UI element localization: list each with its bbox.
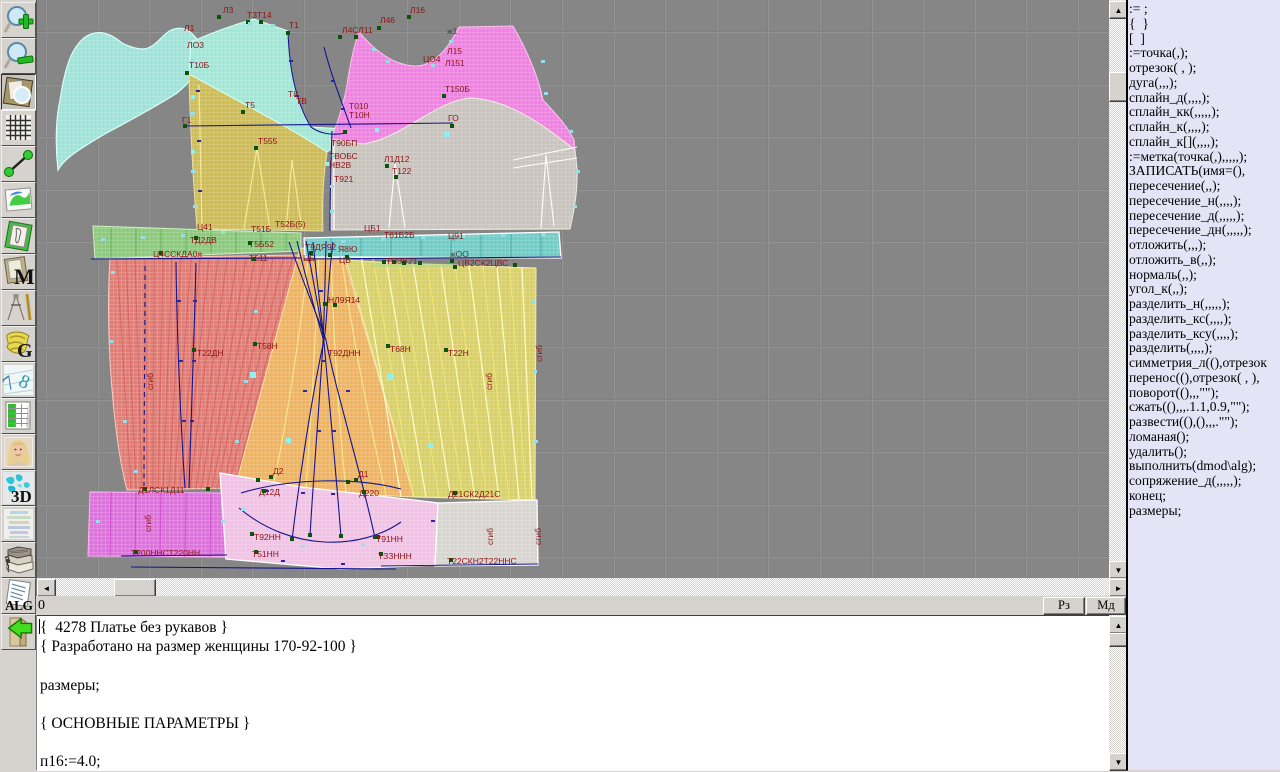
svg-text:сгиб: сгиб [533,528,543,545]
svg-text:Л151: Л151 [445,58,465,68]
svg-text:Т511: Т511 [249,253,268,263]
svg-text:ЦО4: ЦО4 [423,54,441,64]
svg-text:ЛО3: ЛО3 [187,40,204,50]
svg-text:Г1: Г1 [182,115,192,125]
svg-text:Т51Б: Т51Б [251,224,272,234]
svg-text:Т22ДН: Т22ДН [197,348,224,358]
svg-text:Т200ННСТ220НН: Т200ННСТ220НН [131,548,200,558]
svg-text:Т92ДНН: Т92ДНН [328,348,361,358]
svg-text:ТД2ДВ: ТД2ДВ [190,235,217,245]
svg-text:ж1: ж1 [447,26,458,36]
svg-text:Л1: Л1 [184,23,195,33]
svg-text:G: G [17,340,33,361]
svg-text:Т555: Т555 [258,136,278,146]
svg-text:сгиб: сгиб [484,373,494,390]
svg-text:Л46: Л46 [380,15,395,25]
svg-text:ALG: ALG [5,598,33,613]
svg-text:Д220: Д220 [359,488,379,498]
svg-text:НВ2В: НВ2В [329,160,352,170]
svg-text:Л4СЛ11: Л4СЛ11 [342,25,373,35]
svg-text:Ц4ССКДА0я: Ц4ССКДА0я [153,249,202,259]
svg-text:ТВ: ТВ [296,96,307,106]
svg-text:Т22Н: Т22Н [448,348,469,358]
svg-text:Д1ЛСК1Д11: Д1ЛСК1Д11 [138,485,185,495]
svg-text:Т921: Т921 [334,174,354,184]
svg-text:Т150Б: Т150Б [445,84,470,94]
svg-text:Т5: Т5 [245,100,255,110]
svg-text:Т3Т14: Т3Т14 [247,10,272,20]
svg-text:Д21СК2Д21С: Д21СК2Д21С [448,489,500,499]
svg-text:Т122: Т122 [392,166,412,176]
svg-text:ЦВ: ЦВ [339,255,351,265]
svg-text:Т10Б: Т10Б [189,60,210,70]
svg-text:M: M [14,264,35,289]
svg-text:3D: 3D [11,487,32,505]
svg-text:сгиб: сгиб [485,528,495,545]
svg-text:Д12Д: Д12Д [259,487,280,497]
svg-text:сгиб: сгиб [534,345,544,362]
svg-text:Л1Д12: Л1Д12 [384,154,410,164]
svg-text:сгиб: сгиб [143,515,153,532]
svg-text:Д2: Д2 [273,466,284,476]
svg-text:ЦВ2СК2ЦВС: ЦВ2СК2ЦВС [458,258,508,268]
svg-text:Т90БП: Т90БП [331,138,357,148]
svg-text:Ц41: Ц41 [197,222,213,232]
svg-text:Л3: Л3 [223,5,234,15]
svg-text:Т22СКН2Т22ННС: Т22СКН2Т22ННС [447,556,517,566]
svg-text:ЦБ: ЦБ [303,253,315,263]
svg-text:сгиб: сгиб [145,373,155,390]
svg-text:ТЗЗННН: ТЗЗННН [378,551,412,561]
svg-text:Д1: Д1 [358,469,369,479]
svg-text:Ц91: Ц91 [448,231,464,241]
svg-text:ЦБ1: ЦБ1 [364,223,381,233]
svg-text:Л15: Л15 [447,46,462,56]
svg-text:Т51НН: Т51НН [252,549,279,559]
svg-text:Т61Б2Б: Т61Б2Б [384,230,415,240]
svg-text:Т10Н: Т10Н [349,110,370,120]
svg-text:Т9ДЯ92: Т9ДЯ92 [305,242,337,252]
svg-text:Т52Б(5): Т52Б(5) [275,219,306,229]
svg-text:Т68Н: Т68Н [390,344,411,354]
svg-text:Я8Ю: Я8Ю [338,244,358,254]
svg-text:ТЯЗВ21: ТЯЗВ21 [386,256,418,266]
svg-text:Т1: Т1 [289,20,299,30]
svg-text:Т5Б52: Т5Б52 [249,239,274,249]
svg-text:ГО: ГО [448,113,459,123]
svg-text:Т91НН: Т91НН [376,534,403,544]
svg-text:Т58Н: Т58Н [257,341,278,351]
svg-text:Л16: Л16 [410,5,425,15]
svg-text:НЛ9Я14: НЛ9Я14 [328,295,360,305]
svg-text:Т92НН: Т92НН [254,532,281,542]
